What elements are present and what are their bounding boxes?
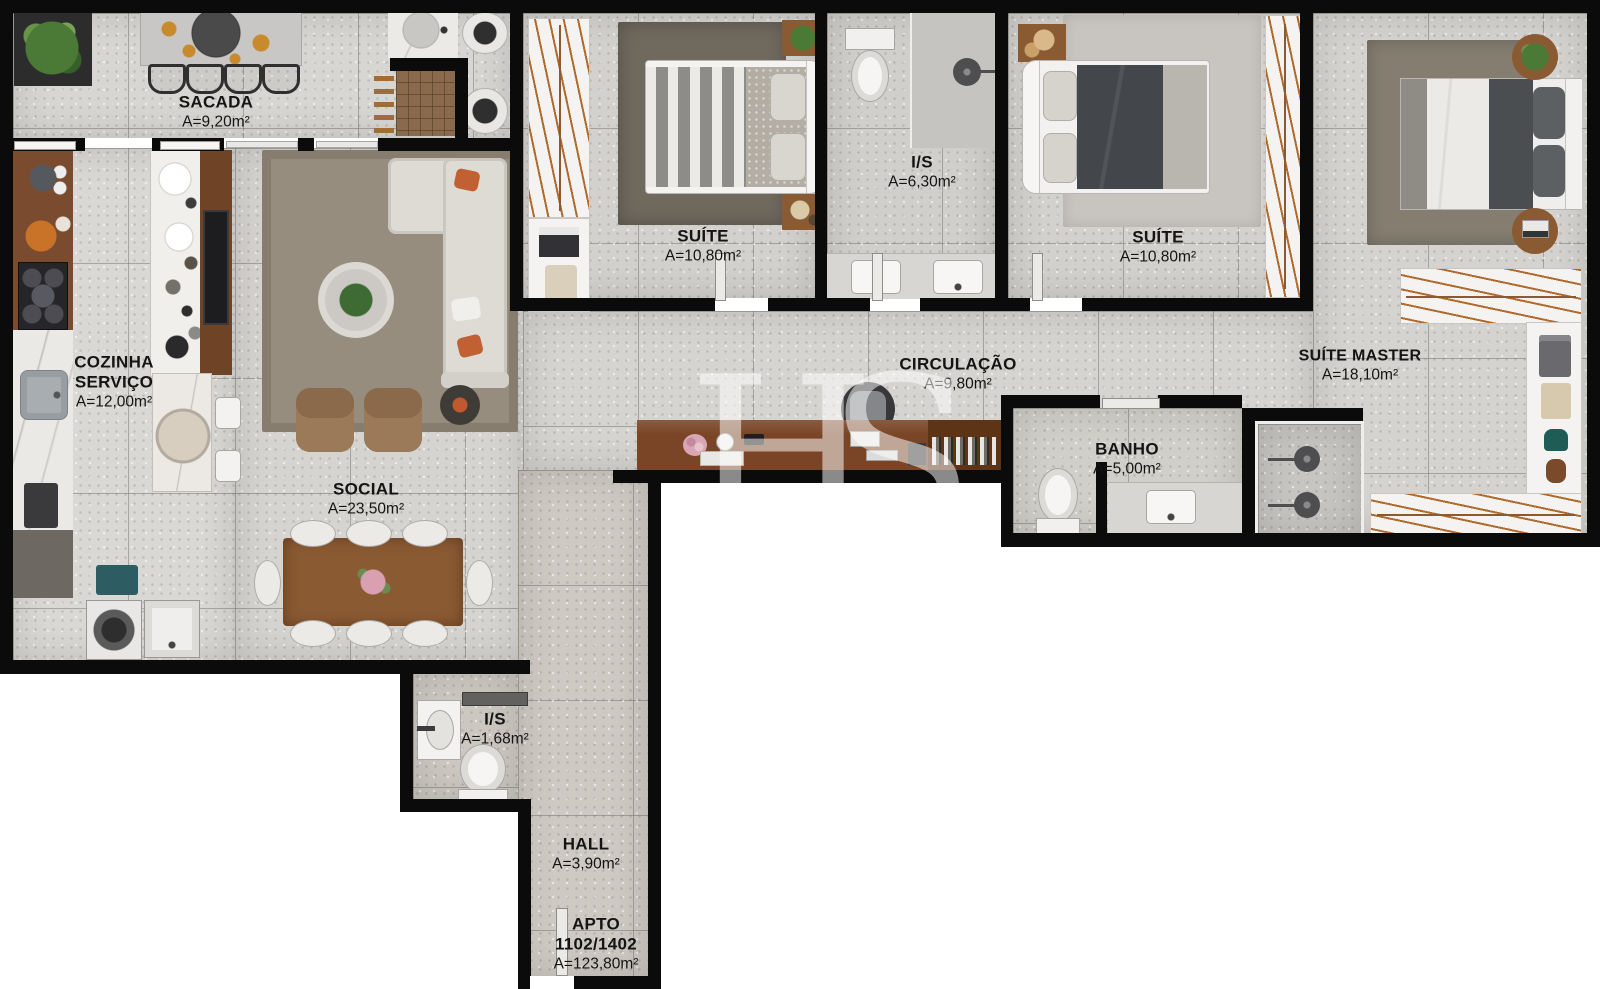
round-side-table [1512, 34, 1558, 80]
wall-banho-left [1001, 395, 1013, 547]
toilet-symbol [845, 28, 895, 50]
wall-is-hall-left [400, 660, 413, 812]
sheet-light [1163, 65, 1207, 189]
pillow [1043, 133, 1077, 183]
stove [18, 262, 68, 330]
shower-head [1294, 492, 1320, 518]
pillow [1043, 71, 1077, 121]
wall-hall-right [648, 470, 661, 989]
room-label-sacada: SACADA A=9,20m² [179, 93, 254, 132]
toilet-bowl [460, 744, 506, 794]
coffee-table [318, 262, 394, 338]
floor-shower-master [1255, 421, 1364, 539]
sink-basin [1146, 490, 1196, 524]
toilet-bowl [1038, 468, 1078, 522]
shower-arm [979, 70, 995, 73]
glass-door [316, 141, 378, 148]
wall-corridor-top-d [1082, 298, 1313, 311]
sink-basin [933, 260, 983, 294]
room-label-suite2: SUÍTE A=10,80m² [1120, 228, 1196, 267]
wall-sacada-stub [298, 138, 314, 151]
door-banho [1102, 398, 1160, 409]
room-label-social: SOCIAL A=23,50m² [328, 480, 404, 519]
glass-door [226, 141, 298, 148]
pillow [770, 73, 806, 121]
nightstand [1018, 24, 1066, 62]
wall-sacada-bottom-c [378, 138, 523, 151]
bar-stool [186, 64, 224, 94]
wood-slats [374, 76, 394, 134]
dining-table [283, 538, 463, 626]
wall-corridor-top-b [768, 298, 870, 311]
monitor [850, 431, 880, 447]
bed-suite1 [645, 60, 827, 194]
keyboard [866, 450, 898, 461]
balcony-counter [140, 8, 302, 66]
door-leaf-open [462, 692, 528, 706]
kitchen-cabinet-gray [13, 530, 73, 598]
dining-chair [402, 620, 448, 647]
wardrobe-rail [1284, 24, 1286, 288]
toilet-tank [1036, 518, 1080, 534]
wall-banho-top2 [1158, 395, 1242, 408]
floor-plan: SACADA A=9,20m² COZINHA SERVIÇO A=12,00m… [0, 0, 1600, 989]
folded-shirt-gray [1539, 335, 1571, 377]
bed-master [1400, 78, 1582, 210]
wall-banho-top [1001, 395, 1100, 408]
wall-sacada-inner-v [455, 58, 468, 151]
books [1522, 220, 1549, 238]
tiled-area [396, 70, 456, 136]
wall-is-hall-bottom [400, 799, 530, 812]
wall-corridor-top-a [510, 298, 715, 311]
headboard [1023, 61, 1040, 193]
wall-is-suite2 [995, 0, 1008, 298]
bed-suite2 [1022, 60, 1210, 194]
dining-chair [346, 620, 392, 647]
laundry-tub [144, 600, 200, 658]
vessel-basin [462, 12, 508, 54]
dining-chair [290, 620, 336, 647]
papers [700, 451, 744, 466]
wardrobe-suite1 [528, 18, 590, 218]
shower-arm [1268, 504, 1296, 507]
wardrobe-suite2 [1265, 15, 1303, 298]
phone [744, 434, 764, 445]
wall-social-bottom [0, 660, 413, 674]
room-label-suite1: SUÍTE A=10,80m² [665, 227, 741, 266]
dining-chair [290, 520, 336, 547]
sandals [1546, 459, 1566, 483]
pillow [1533, 87, 1565, 139]
island-marble [152, 373, 212, 492]
dining-chair [346, 520, 392, 547]
wall-left [0, 0, 13, 674]
books-row [932, 437, 996, 465]
side-table [440, 385, 480, 425]
wall-corridor-top-c [920, 298, 1030, 311]
headboard [1565, 79, 1582, 209]
door-is-suite [872, 253, 883, 301]
bar-stool [148, 64, 186, 94]
plate [716, 433, 734, 451]
room-label-hall: HALL A=3,90m² [552, 835, 620, 874]
shower-head [1294, 446, 1320, 472]
kitchen-sink [20, 370, 68, 420]
toilet-bowl [851, 50, 889, 102]
room-label-banho: BANHO A=5,00m² [1093, 440, 1161, 479]
wardrobe-rail [559, 25, 561, 211]
wall-corridor-bottom [613, 470, 1013, 483]
closet-master-right [1526, 322, 1582, 495]
entry-door-gap [530, 976, 574, 989]
folded-shirt-beige [1541, 383, 1571, 419]
wall-suite2-master [1300, 0, 1313, 311]
island-stool [215, 450, 241, 482]
room-label-is-suite: I/S A=6,30m² [888, 153, 956, 192]
shower-zone [910, 13, 997, 148]
wall-is-hall-top [400, 660, 530, 674]
wall-top [0, 0, 1600, 13]
pillow [1533, 145, 1565, 197]
pillow [770, 133, 806, 181]
closet-rail [1406, 296, 1575, 298]
island-counter-white [150, 150, 202, 377]
vessel-basin [462, 88, 508, 134]
armchair [296, 388, 354, 452]
closet-master-top [1400, 268, 1582, 324]
duvet-white [1427, 79, 1489, 209]
wall-sacada-inner-h [390, 58, 468, 71]
washing-machine [86, 600, 142, 660]
armchair [364, 388, 422, 452]
tall-oven [203, 210, 229, 325]
folded-blanket [539, 227, 579, 257]
closet-rail [1377, 514, 1574, 516]
closet-master-bottom [1370, 493, 1582, 535]
dining-chair [402, 520, 448, 547]
shower-arm [1268, 458, 1296, 461]
duvet-dark [1489, 79, 1533, 209]
duvet-striped [646, 67, 746, 187]
room-label-circulacao: CIRCULAÇÃO A=9,80m² [899, 355, 1016, 394]
wall-shower-left [1242, 408, 1255, 547]
foot-bench [1401, 79, 1427, 209]
wall-suite1-left [510, 0, 523, 311]
wall-shower-top [1242, 408, 1363, 421]
shower-head [953, 58, 981, 86]
dining-chair [466, 560, 493, 606]
wall-suite1-is [815, 0, 827, 298]
room-label-is-hall: I/S A=1,68m² [461, 710, 529, 749]
wall-bottom-right [1001, 533, 1600, 547]
bar-stool [262, 64, 300, 94]
duvet-dark [1077, 65, 1163, 189]
storage-box [908, 443, 926, 465]
island-stool [215, 397, 241, 429]
door-frame [14, 141, 76, 150]
small-appliance [24, 483, 58, 528]
wall-hall-left [518, 799, 531, 989]
room-label-cozinha: COZINHA SERVIÇO A=12,00m² [74, 353, 154, 412]
shoes-teal [1544, 429, 1568, 451]
room-label-apto: APTO 1102/1402 A=123,80m² [554, 915, 639, 974]
room-label-master: SUÍTE MASTER A=18,10m² [1299, 348, 1422, 385]
door-suite2 [1032, 253, 1043, 301]
pillow-white [451, 296, 482, 322]
floor-hall [518, 470, 648, 977]
door-frame [160, 141, 220, 150]
bar-stool [224, 64, 262, 94]
dining-chair [254, 560, 281, 606]
wall-right [1587, 0, 1600, 547]
laundry-basket [96, 565, 138, 595]
faucet [417, 726, 435, 731]
plant-pot [14, 10, 92, 86]
